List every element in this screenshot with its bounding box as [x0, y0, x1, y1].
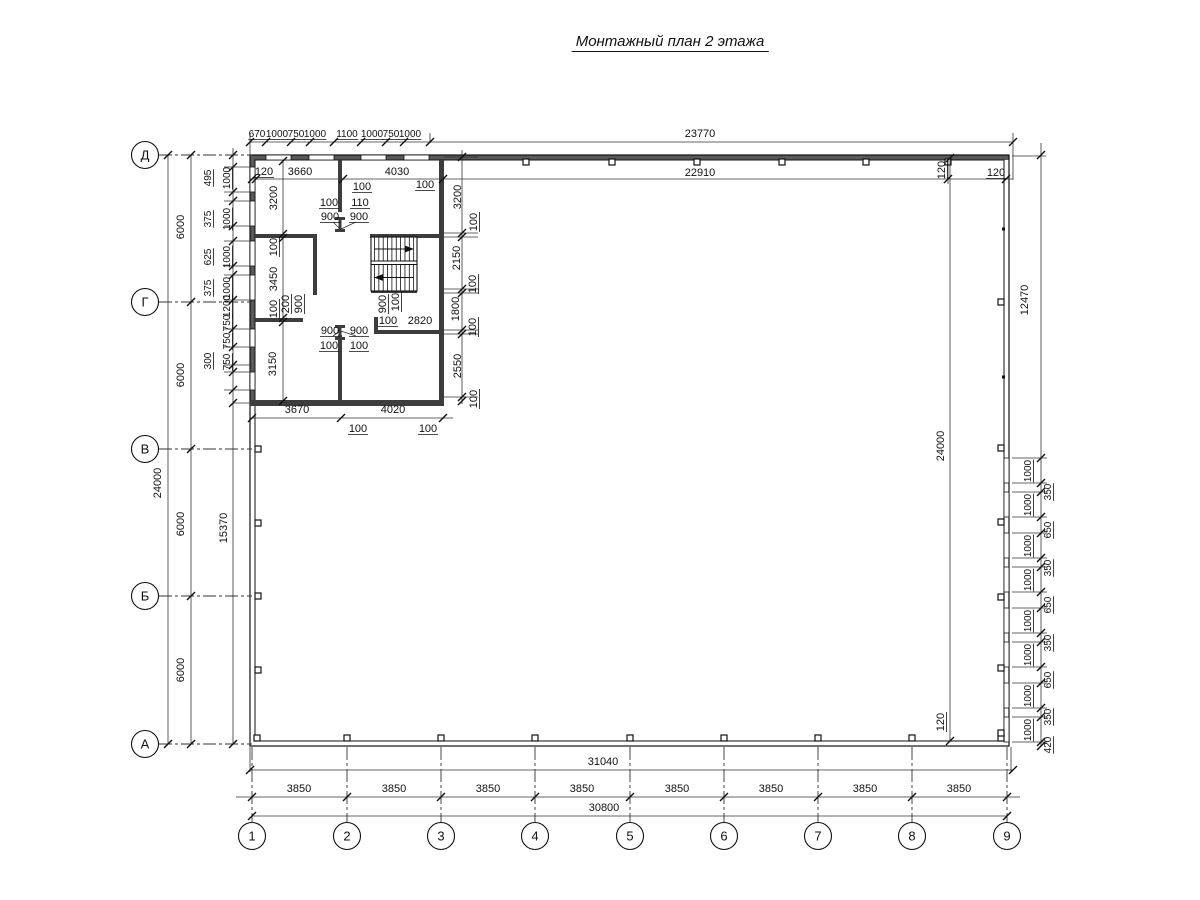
dim-text: 1000 [361, 129, 384, 140]
dim-text: 1000 [222, 166, 233, 189]
dim-text: 670 [249, 129, 266, 140]
column-marker [255, 446, 261, 452]
dim-text: 495 [203, 169, 214, 186]
dim-text: 100 [320, 197, 338, 209]
window-opening [250, 372, 255, 390]
axis-label: 2 [343, 829, 350, 844]
dim-text: 650 [1043, 596, 1054, 613]
window-opening [1004, 492, 1009, 517]
column-marker [998, 665, 1004, 671]
dim-text: 100 [468, 390, 480, 408]
dim-text: 3850 [853, 783, 877, 795]
axis-label: А [141, 737, 150, 752]
column-dot-marker [1002, 376, 1005, 379]
dim-text: 1200 [222, 294, 233, 317]
dim-text: 1000 [304, 129, 327, 140]
window-opening [361, 155, 386, 160]
dim-text: 100 [268, 238, 280, 256]
dim-text: 1000 [222, 207, 233, 230]
column-marker [779, 159, 785, 165]
window-opening [1004, 642, 1009, 667]
dim-text: 100 [268, 300, 280, 318]
window-opening [250, 275, 255, 300]
outer-wall-line [250, 155, 1009, 746]
dim-text: 3850 [665, 783, 689, 795]
axis-label: Г [141, 295, 148, 310]
axis-label: 3 [437, 829, 444, 844]
dim-text: 625 [203, 248, 214, 265]
dim-text: 3150 [267, 352, 279, 376]
dim-text: 22910 [685, 167, 716, 179]
dim-text: 3850 [947, 783, 971, 795]
window-opening [250, 201, 255, 226]
dim-text: 120 [987, 167, 1005, 179]
window-opening [1004, 533, 1009, 558]
dim-text: 750 [288, 129, 305, 140]
dim-text: 120 [936, 161, 948, 179]
dim-text: 3850 [759, 783, 783, 795]
window-opening [309, 155, 334, 160]
column-marker [255, 520, 261, 526]
window-opening [1004, 683, 1009, 708]
dim-text: 1000 [1023, 643, 1034, 666]
window-opening [250, 241, 255, 266]
dim-text: 900 [377, 295, 389, 313]
dim-text: 120 [255, 166, 273, 178]
dim-text: 350 [1043, 708, 1054, 725]
dim-text: 1000 [266, 129, 289, 140]
dim-text: 650 [1043, 671, 1054, 688]
dim-text: 1000 [1023, 459, 1034, 482]
axis-label: 8 [908, 829, 915, 844]
partition-wall [338, 335, 342, 401]
dim-text: 100 [350, 340, 368, 352]
dim-text: 3850 [570, 783, 594, 795]
dim-text: 750 [383, 129, 400, 140]
window-opening [1004, 608, 1009, 633]
dim-text: 375 [203, 279, 214, 296]
dim-text: 110 [351, 197, 369, 209]
axis-label: 1 [248, 829, 255, 844]
dim-text: 31040 [588, 756, 619, 768]
column-marker [694, 159, 700, 165]
dimension-ticks [164, 138, 1045, 820]
dim-text: 1000 [1023, 718, 1034, 741]
dim-text: 120 [935, 713, 947, 731]
dim-text: 1000 [1023, 609, 1034, 632]
window-opening [1004, 458, 1009, 483]
column-marker [721, 735, 727, 741]
dim-text: 3450 [268, 267, 280, 291]
partition-wall [338, 160, 342, 212]
staircase [371, 237, 417, 291]
dim-text: 6000 [175, 215, 187, 239]
dim-text: 100 [390, 293, 402, 311]
column-marker [909, 735, 915, 741]
dim-text: 900 [350, 211, 368, 223]
stairwell-outline [371, 237, 417, 291]
axis-label: Д [141, 148, 150, 163]
dim-text: 100 [416, 179, 434, 191]
dim-text: 1800 [450, 297, 462, 321]
dim-text: 750 [222, 332, 233, 349]
dim-text: 3200 [268, 186, 280, 210]
dim-text: 12470 [1019, 285, 1031, 316]
dim-text: 100 [379, 315, 397, 327]
dim-text: 350 [1043, 483, 1054, 500]
dim-text: 100 [349, 423, 367, 435]
dim-text: 1000 [222, 245, 233, 268]
inner-wall-line [255, 160, 1004, 741]
dim-text: 3850 [476, 783, 500, 795]
dim-text: 6000 [175, 658, 187, 682]
column-marker [523, 159, 529, 165]
dim-text: 24000 [935, 431, 947, 462]
partition-wall [313, 238, 317, 295]
dim-text: 1000 [1023, 568, 1034, 591]
dim-text: 100 [467, 275, 479, 293]
column-marker [863, 159, 869, 165]
dim-text: 3850 [382, 783, 406, 795]
axis-label: В [141, 442, 150, 457]
dim-text: 900 [293, 295, 305, 313]
dim-text: 6000 [175, 363, 187, 387]
dim-text: 24000 [152, 468, 164, 499]
dim-text: 100 [353, 181, 371, 193]
block-right-wall [439, 160, 444, 401]
dim-text: 420 [1043, 736, 1054, 753]
dim-text: 15370 [218, 513, 230, 544]
dim-text: 900 [321, 325, 339, 337]
column-marker [254, 735, 260, 741]
partition-wall [374, 330, 444, 334]
column-marker [255, 667, 261, 673]
dim-text: 4030 [385, 166, 409, 178]
dim-text: 900 [350, 325, 368, 337]
column-marker [998, 299, 1004, 305]
column-markers [254, 159, 1005, 741]
dim-text: 100 [320, 340, 338, 352]
dim-text: 1000 [1023, 684, 1034, 707]
window-opening [250, 329, 255, 347]
drawing-title-text: Монтажный план 2 этажа [576, 33, 765, 50]
floor-plan-drawing: Монтажный план 2 этажа [0, 0, 1200, 900]
axis-label: 4 [531, 829, 538, 844]
dimension-texts: 6701000750100011001000750100023770120366… [152, 128, 1054, 814]
dim-text: 750 [222, 353, 233, 370]
dim-text: 3670 [285, 404, 309, 416]
column-marker [609, 159, 615, 165]
dim-text: 1000 [1023, 534, 1034, 557]
axis-label: 7 [814, 829, 821, 844]
column-marker [815, 735, 821, 741]
column-marker [344, 735, 350, 741]
dim-text: 300 [203, 352, 214, 369]
column-marker [998, 519, 1004, 525]
dim-text: 750 [222, 314, 233, 331]
dim-text: 100 [468, 213, 480, 231]
dim-text: 3660 [288, 166, 312, 178]
dim-text: 30800 [589, 802, 620, 814]
window-openings [250, 155, 1009, 742]
dim-text: 1000 [1023, 493, 1034, 516]
dim-text: 2820 [408, 315, 432, 327]
axis-label: Б [141, 589, 150, 604]
column-marker [255, 593, 261, 599]
dim-text: 1100 [336, 129, 358, 140]
dim-text: 350 [1043, 634, 1054, 651]
axis-label: 6 [720, 829, 727, 844]
dim-text: 23770 [685, 128, 716, 140]
dim-text: 100 [467, 318, 479, 336]
dim-line [341, 222, 356, 229]
column-marker [998, 730, 1004, 736]
plan-svg: ДГВБА123456789 6701000750100011001000750… [0, 0, 1200, 900]
axis-markers: ДГВБА123456789 [132, 142, 1021, 850]
column-marker [998, 594, 1004, 600]
drawing-title: Монтажный план 2 этажа [572, 33, 769, 52]
column-marker [627, 735, 633, 741]
dim-text: 350 [1043, 559, 1054, 576]
dim-text: 375 [203, 210, 214, 227]
partition-wall [374, 317, 378, 330]
axis-label: 9 [1003, 829, 1010, 844]
dim-text: 2550 [452, 354, 464, 378]
axis-label: 5 [626, 829, 633, 844]
window-opening [1004, 567, 1009, 592]
dim-text: 6000 [175, 512, 187, 536]
column-marker [998, 445, 1004, 451]
dim-text: 3850 [287, 783, 311, 795]
dim-text: 650 [1043, 521, 1054, 538]
window-opening [404, 155, 429, 160]
column-dot-marker [1002, 228, 1005, 231]
building-walls [250, 155, 1009, 746]
dim-text: 1000 [399, 129, 422, 140]
dim-text: 200 [280, 295, 292, 313]
dim-text: 4020 [381, 404, 405, 416]
window-opening [1004, 717, 1009, 742]
dim-text: 100 [419, 423, 437, 435]
column-marker [532, 735, 538, 741]
dim-text: 3200 [452, 185, 464, 209]
dim-text: 900 [321, 211, 339, 223]
dim-text: 2150 [451, 246, 463, 270]
column-marker [438, 735, 444, 741]
